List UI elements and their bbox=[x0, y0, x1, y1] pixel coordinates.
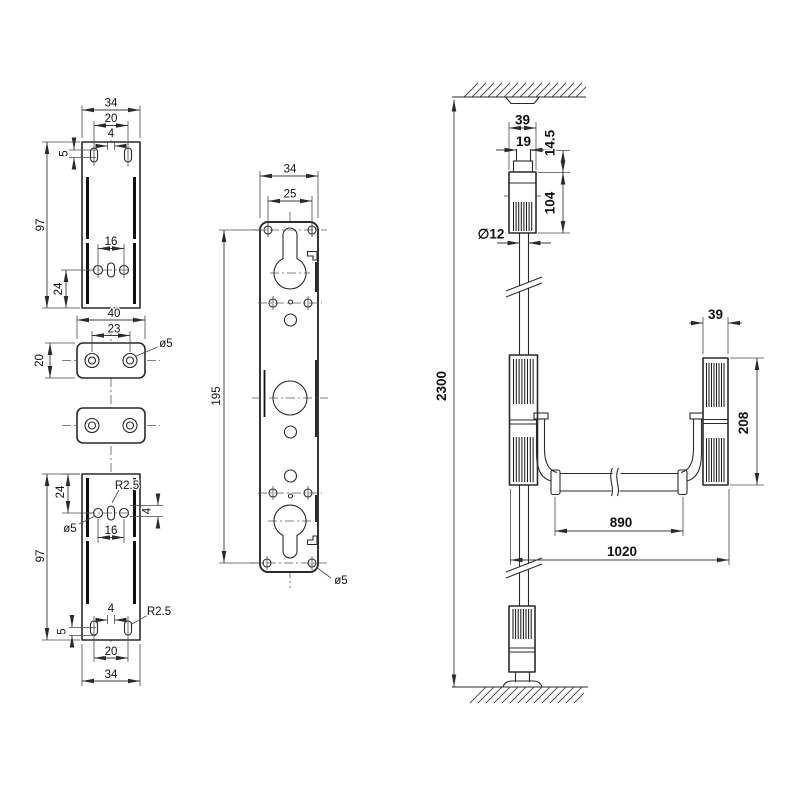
dim-bottom-bracket-hole-offset: 24 bbox=[55, 485, 67, 498]
bar-sleeve-left bbox=[551, 470, 560, 495]
dim-plate-width: 40 bbox=[108, 308, 121, 320]
technical-drawing-canvas: 34 20 4 5 97 24 16 bbox=[0, 0, 800, 800]
lower-rod bbox=[506, 485, 542, 606]
dim-side-housing-width: 39 bbox=[708, 307, 723, 322]
floor-socket bbox=[503, 681, 542, 687]
upper-rod bbox=[506, 233, 542, 355]
dim-lock-plate-hole-spacing: 195 bbox=[211, 386, 223, 405]
dim-bottom-bracket-edge-offset: 5 bbox=[57, 628, 69, 634]
dim-top-bracket-hole-pitch: 16 bbox=[105, 236, 118, 248]
dim-bottom-bracket-slot-radius-top: R2.5 bbox=[115, 480, 139, 492]
floor-hatch bbox=[452, 687, 588, 703]
push-bar bbox=[534, 413, 704, 497]
dim-bottom-bracket-slot-width: 4 bbox=[108, 603, 115, 615]
spacer-plates-view: 40 23 20 ø5 bbox=[34, 308, 173, 443]
dim-bottom-bracket-slot-span: 20 bbox=[105, 646, 118, 658]
bottom-bolt-unit bbox=[503, 606, 542, 687]
dim-latch-width: 19 bbox=[516, 134, 531, 149]
dim-plate-height: 20 bbox=[34, 354, 46, 367]
dim-plate-hole-pitch: 23 bbox=[108, 324, 121, 336]
dim-top-bracket-height: 97 bbox=[35, 219, 47, 232]
elbow-cap-right bbox=[690, 413, 704, 419]
panic-bolt-assembly-view: 39 19 14.5 104 ∅12 2300 39 208 890 1020 bbox=[434, 83, 764, 703]
dim-lock-plate-hole-span: 25 bbox=[284, 189, 297, 201]
bar-sleeve-right bbox=[678, 470, 687, 495]
side-housing bbox=[703, 358, 728, 485]
dim-housing-width: 39 bbox=[515, 113, 530, 128]
dim-side-housing-length: 208 bbox=[736, 411, 751, 434]
dim-lock-plate-hole-dia: ø5 bbox=[334, 575, 347, 587]
dim-top-bracket-width: 34 bbox=[105, 98, 118, 110]
dim-lock-plate-width: 34 bbox=[284, 164, 297, 176]
dim-top-bracket-slot-width: 4 bbox=[108, 128, 115, 140]
dim-total-height: 2300 bbox=[434, 371, 449, 401]
dim-top-bracket-edge-offset: 5 bbox=[59, 150, 71, 156]
dim-bottom-bracket-width: 34 bbox=[105, 669, 118, 681]
dimensions: 39 19 14.5 104 ∅12 2300 39 208 890 1020 bbox=[434, 113, 764, 566]
dim-housing-length: 104 bbox=[543, 191, 558, 214]
dim-bottom-bracket-hole-pitch: 16 bbox=[105, 525, 118, 537]
dim-bottom-bracket-slot-radius-bottom: R2.5 bbox=[147, 606, 171, 618]
ceiling-strike-recess bbox=[506, 98, 539, 104]
dim-bar-length: 890 bbox=[610, 515, 633, 530]
dim-bottom-bracket-slot-height: 4 bbox=[142, 507, 154, 514]
end-bracket-top-view: 34 20 4 5 97 24 16 bbox=[35, 98, 140, 309]
dim-plate-hole-dia: ø5 bbox=[159, 338, 172, 350]
dim-bottom-bracket-hole-dia: ø5 bbox=[63, 523, 76, 535]
latch-guide bbox=[514, 161, 533, 172]
dim-latch-offset: 14.5 bbox=[543, 129, 558, 156]
technical-drawing-page: 34 20 4 5 97 24 16 bbox=[0, 0, 800, 800]
end-bracket-bottom-view: 24 R2.5 ø5 16 4 97 4 R2.5 5 20 34 bbox=[35, 474, 171, 686]
dim-top-bracket-hole-offset: 24 bbox=[53, 282, 65, 295]
center-housing bbox=[510, 355, 538, 485]
dim-bottom-bracket-height: 97 bbox=[35, 550, 47, 563]
dim-overall-width: 1020 bbox=[607, 544, 637, 559]
lock-plate-view: 34 25 195 ø5 bbox=[211, 164, 348, 589]
ceiling-hatch bbox=[452, 83, 586, 104]
dim-top-bracket-hole-span: 20 bbox=[105, 113, 118, 125]
dim-rod-dia: ∅12 bbox=[478, 227, 505, 242]
